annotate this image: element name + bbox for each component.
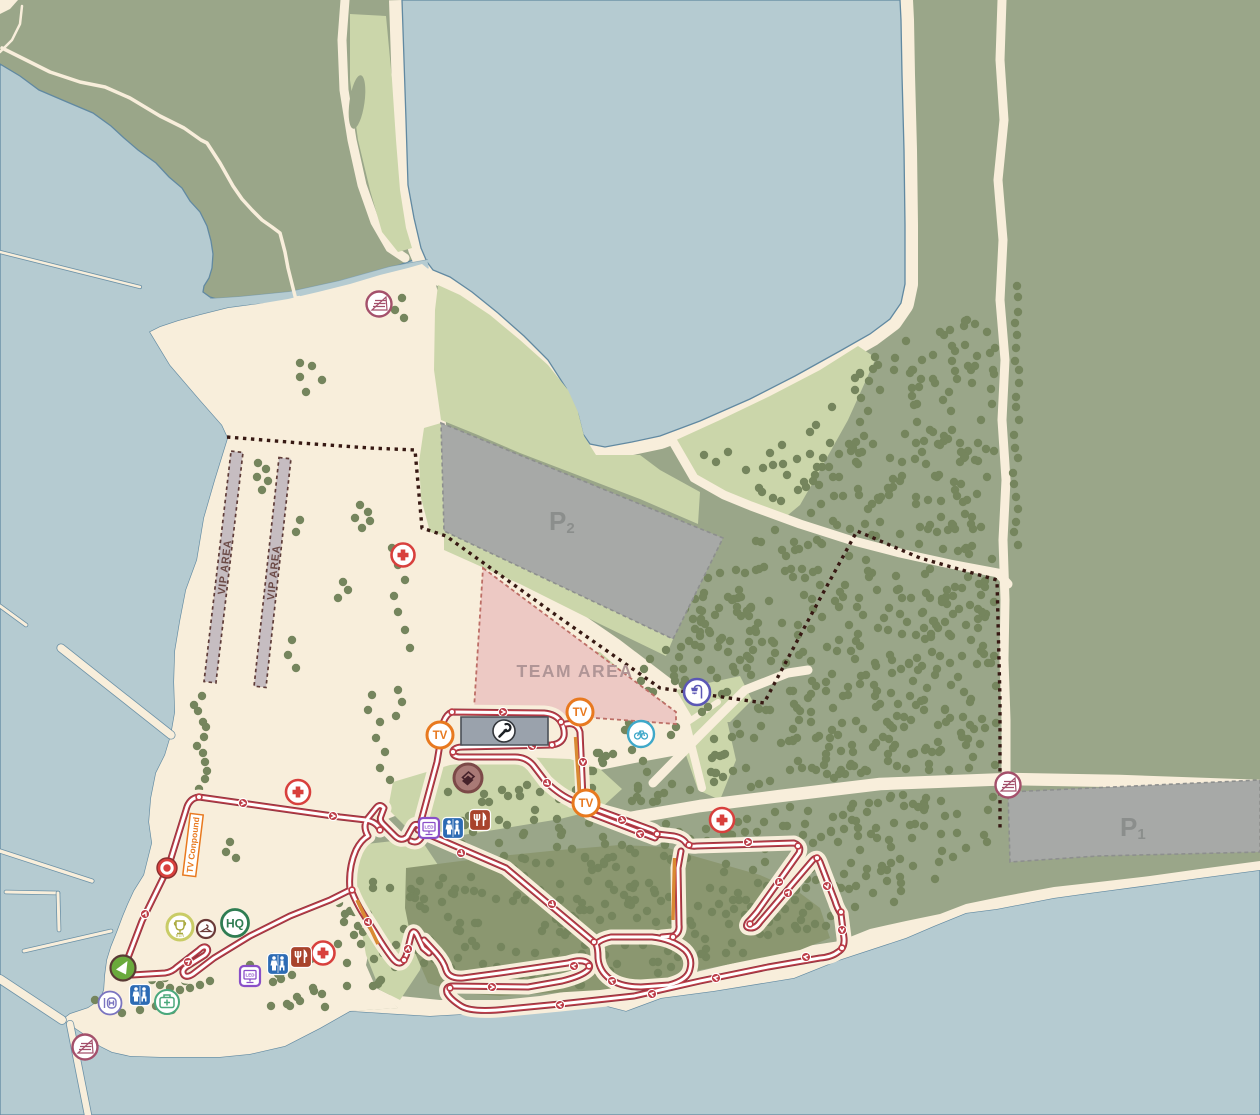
svg-text:TV: TV (579, 798, 594, 810)
svg-text:TEAM AREA: TEAM AREA (517, 661, 634, 681)
svg-text:TV: TV (573, 707, 588, 719)
svg-text:RUN: RUN (176, 933, 185, 938)
svg-text:LED: LED (246, 973, 256, 978)
svg-text:HQ: HQ (226, 917, 244, 931)
svg-text:TV: TV (433, 730, 448, 742)
svg-text:LED: LED (425, 825, 435, 830)
